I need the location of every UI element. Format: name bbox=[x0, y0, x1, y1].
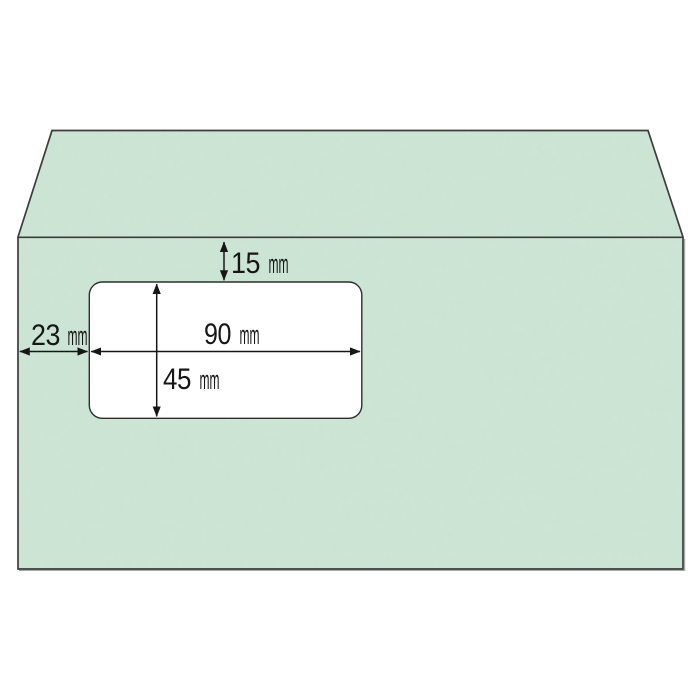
left-margin-value: 23 bbox=[31, 319, 60, 352]
dimension-label-left-margin: 23 mm bbox=[31, 319, 87, 352]
dimension-label-top-margin: 15 mm bbox=[231, 247, 288, 280]
diagram-canvas: 15 mm 23 mm 90 mm 45 mm bbox=[0, 0, 700, 700]
envelope-dimension-diagram: 15 mm 23 mm 90 mm 45 mm bbox=[0, 0, 700, 700]
top-margin-value: 15 bbox=[231, 247, 260, 280]
left-margin-unit: mm bbox=[67, 321, 87, 351]
window-height-unit: mm bbox=[199, 365, 219, 395]
window-height-value: 45 bbox=[163, 363, 191, 396]
window-width-value: 90 bbox=[204, 318, 231, 351]
top-margin-unit: mm bbox=[268, 249, 288, 279]
window-width-unit: mm bbox=[239, 320, 259, 350]
